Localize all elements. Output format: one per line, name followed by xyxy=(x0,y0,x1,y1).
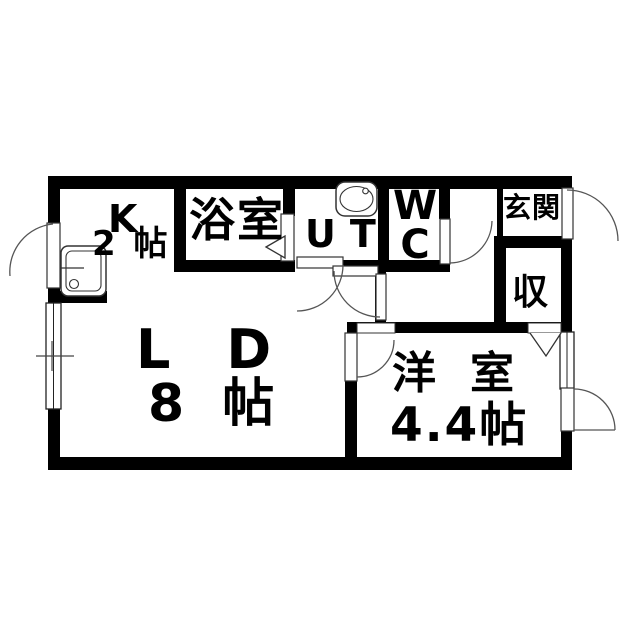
room-label-western-room-size: 4.4帖 xyxy=(390,402,528,449)
storage-opening-gap xyxy=(528,323,561,333)
wall-kitchen-bath-divider xyxy=(174,189,186,272)
western-room-window xyxy=(560,332,574,389)
room-label-bathroom: 浴室 xyxy=(189,197,285,243)
room-label-toilet: W C xyxy=(392,187,438,265)
entrance-door-panel xyxy=(562,188,573,239)
room-label-entrance: 玄関 xyxy=(503,194,561,222)
room-label-kitchen-size: 2 帖 xyxy=(92,227,171,261)
hall-door-open-panel xyxy=(376,274,386,320)
entrance-door-swing-arc xyxy=(567,190,618,241)
room-label-utility: UT xyxy=(305,215,390,253)
wall-ld-western-divider xyxy=(345,380,357,457)
wall-left-upper xyxy=(48,176,60,223)
wall-entrance-bottom xyxy=(494,236,562,248)
back-door-panel xyxy=(47,223,60,288)
room-label-toilet-line2: C xyxy=(392,226,438,265)
wc-door-swing-arc xyxy=(450,221,492,263)
room-label-storage: 収 xyxy=(512,275,548,311)
western-room-door-swing-arc xyxy=(357,340,394,377)
room-label-toilet-line1: W xyxy=(392,187,438,226)
wall-left-lower xyxy=(48,409,60,470)
wc-door-panel xyxy=(440,219,450,264)
floorplan-canvas: K 2 帖 浴室 UT W C 玄関 収 LD 8 帖 洋室 4.4帖 xyxy=(0,0,639,640)
western-room-doorway-gap xyxy=(357,323,395,333)
balcony-door-panel xyxy=(561,388,574,431)
washbasin-icon xyxy=(336,182,377,216)
room-label-living-dining-name: LD xyxy=(136,323,327,377)
wall-top xyxy=(48,176,572,189)
western-room-door-open-panel xyxy=(345,333,357,381)
wall-right-lower xyxy=(561,430,572,470)
room-label-western-room-name: 洋室 xyxy=(392,352,548,396)
wall-wc-right-upper xyxy=(439,189,450,219)
wall-right-middle xyxy=(561,238,572,333)
room-label-living-dining-size: 8 帖 xyxy=(148,378,284,430)
ld-window xyxy=(36,303,74,409)
balcony-door-swing-arc xyxy=(574,389,615,430)
wall-bath-bottom xyxy=(174,260,295,272)
wall-storage-left xyxy=(494,238,506,333)
wall-bottom xyxy=(48,457,572,470)
hall-door-closed-panel xyxy=(333,266,378,276)
